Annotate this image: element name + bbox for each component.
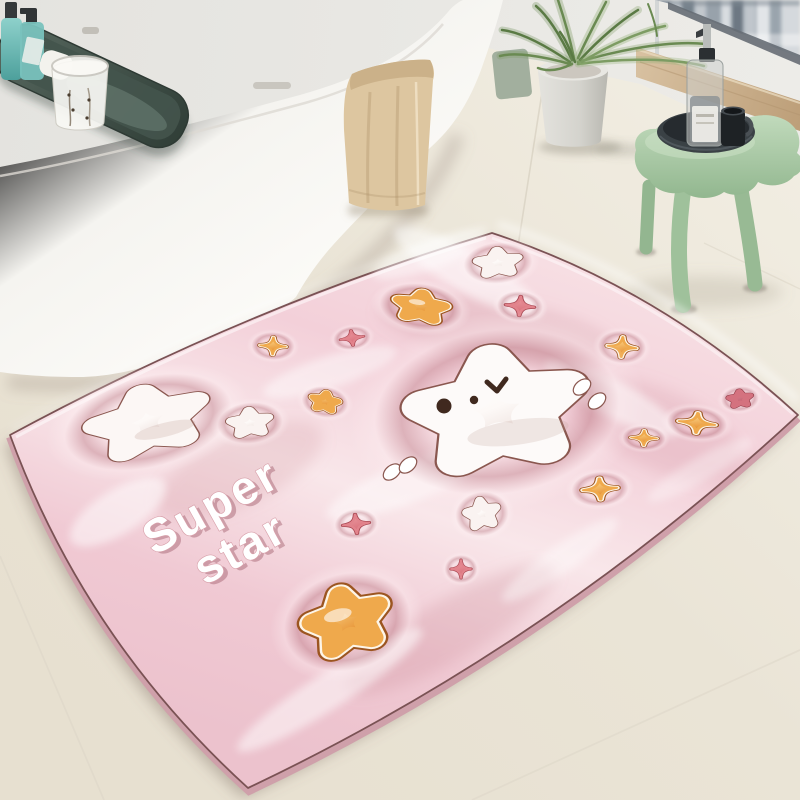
- bottle-pump: [26, 8, 37, 24]
- stool-leg: [679, 184, 684, 305]
- stool-leg: [646, 186, 649, 248]
- candle-jar: [52, 56, 108, 130]
- face-nose: [470, 396, 478, 404]
- mat-sparkle-pink: [441, 552, 481, 586]
- bottle-pump: [5, 2, 17, 20]
- bathroom-scene: Super star Super star: [0, 0, 800, 800]
- shampoo-bottle: [1, 18, 22, 80]
- overflow-slot: [253, 82, 291, 89]
- wall-drain-slot: [82, 27, 99, 34]
- bathroom-illustration: Super star Super star: [0, 0, 800, 800]
- face-eye: [437, 399, 452, 414]
- dispenser-stem: [703, 24, 711, 50]
- bath-towel: [344, 60, 434, 216]
